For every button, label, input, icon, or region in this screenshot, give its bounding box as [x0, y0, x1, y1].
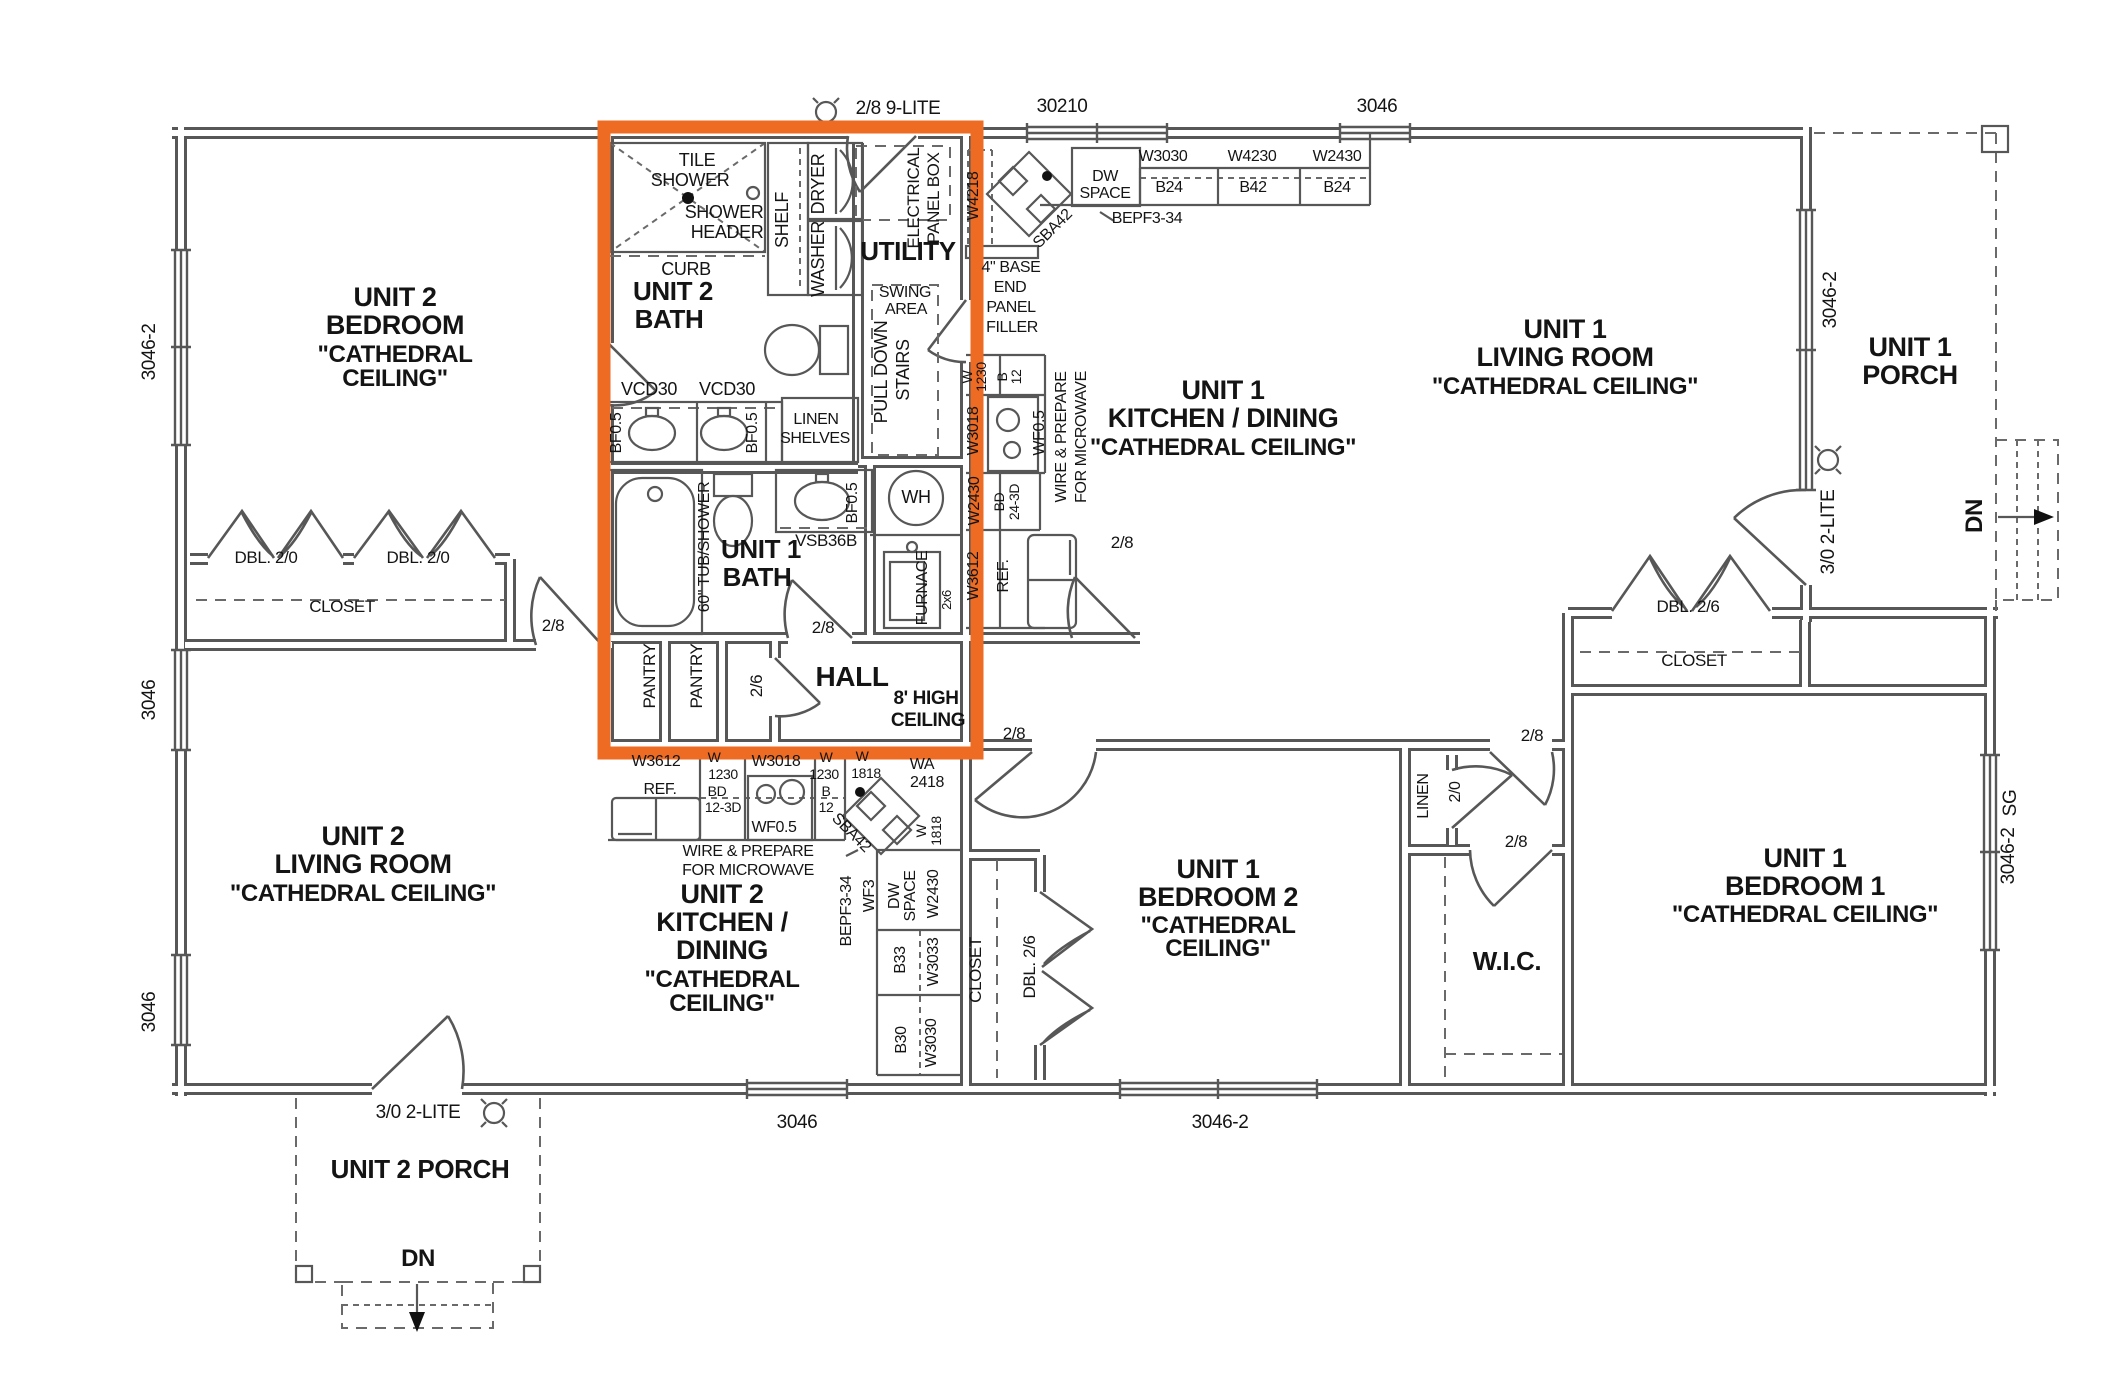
k2-bepf: BEPF3-34	[838, 875, 855, 946]
k2-w3033: W3033	[925, 937, 942, 986]
u2bath-1: UNIT 2	[633, 276, 713, 306]
floor-plan-drawing: 2/8 9-LITE3021030463046-2304630463046304…	[0, 0, 2120, 1388]
u2kit-2: KITCHEN /	[656, 907, 788, 937]
door-porch2-3-0	[372, 1016, 464, 1089]
elec-2: PANEL BOX	[924, 153, 943, 244]
dim-top-door: 2/8 9-LITE	[856, 98, 941, 119]
shh-1: SHOWER	[685, 202, 764, 222]
hc-2: CEILING	[891, 710, 965, 731]
u2kit-4: "CATHEDRAL	[645, 966, 800, 993]
k1-b24b: B24	[1323, 179, 1351, 196]
u1bed1-1: UNIT 1	[1763, 843, 1846, 873]
k2-b: B	[822, 783, 831, 799]
pantry-1: PANTRY	[640, 643, 659, 708]
k1-w3612: W3612	[965, 551, 982, 600]
window-bottom-3046	[747, 1079, 847, 1099]
dim-win-30210: 30210	[1037, 96, 1088, 117]
dim-door-porch2: 3/0 2-LITE	[376, 1102, 461, 1123]
k2-wire-2: FOR MICROWAVE	[682, 862, 814, 879]
vcd30-2: VCD30	[699, 379, 755, 399]
k1-w2430b: W2430	[966, 476, 983, 525]
vsb36b: VSB36B	[795, 531, 857, 550]
window-top-30210	[1027, 123, 1167, 143]
walls	[172, 127, 1998, 1096]
floor-plan-page: 2/8 9-LITE3021030463046-2304630463046304…	[0, 0, 2120, 1388]
u2bed-2: BEDROOM	[326, 310, 464, 340]
u2bed-3: "CATHEDRAL	[318, 341, 473, 368]
u2kit-3: DINING	[676, 935, 768, 965]
k2-b30: B30	[893, 1026, 910, 1054]
u2kit-5: CEILING"	[669, 990, 775, 1017]
vcd30-1: VCD30	[621, 379, 677, 399]
k2-space: SPACE	[902, 870, 919, 921]
door28-e: 2/8	[1521, 726, 1543, 745]
window-lr1-3046-2	[1796, 210, 1816, 490]
shower-head-icon	[747, 187, 759, 199]
u2kit-1: UNIT 2	[680, 879, 763, 909]
k1-wire-2: FOR MICROWAVE	[1073, 371, 1090, 503]
k2-w3612: W3612	[632, 753, 681, 770]
k2-wa: WA	[910, 756, 935, 773]
door28-f: 2/8	[1505, 832, 1527, 851]
door28-d: 2/8	[1111, 533, 1133, 552]
door28-c: 2/8	[1003, 724, 1025, 743]
k2-123d: 12-3D	[705, 799, 741, 815]
k1-filler-2: END	[994, 279, 1027, 296]
k2-2418: 2418	[910, 774, 944, 791]
k2-w-c: W	[856, 748, 870, 764]
linsh-2: SHELVES	[780, 430, 850, 447]
bf05-2: BF0.5	[744, 412, 761, 453]
washer: WASHER	[808, 221, 828, 297]
shelf: SHELF	[772, 192, 792, 248]
door-2-6-hall	[775, 658, 820, 716]
dashed-elements	[196, 133, 2058, 1328]
k1-dw: DW	[1092, 168, 1119, 185]
k1-ref: REF.	[995, 559, 1012, 592]
porch-posts	[296, 126, 2008, 1282]
u1bed1-3: "CATHEDRAL CEILING"	[1672, 901, 1938, 928]
u1bed1-2: BEDROOM 1	[1725, 871, 1885, 901]
door26: 2/6	[747, 675, 766, 697]
k2-1230a: 1230	[708, 766, 738, 782]
porch1-steps	[1996, 440, 2058, 600]
dn-porch1: DN	[1961, 499, 1988, 533]
dim-win-lr1: 3046-2	[1820, 272, 1841, 329]
bf05-1: BF0.5	[608, 412, 625, 453]
closet-u1liv: CLOSET	[1661, 651, 1727, 670]
u2-toilet	[765, 325, 848, 375]
u2liv-1: UNIT 2	[321, 821, 404, 851]
u2bed-1: UNIT 2	[353, 282, 436, 312]
u2bed-4: CEILING"	[342, 365, 448, 392]
k2-ref: REF.	[643, 781, 676, 798]
wall2x6: 2x6	[939, 590, 954, 610]
dim-left-3046-2: 3046-2	[139, 324, 160, 381]
window-bottom-3046-2	[1120, 1079, 1317, 1099]
k1-filler-3: PANEL	[986, 299, 1036, 316]
k1-w4218: W4218	[965, 171, 982, 220]
hc-1: 8' HIGH	[893, 688, 958, 709]
k1-w4230: W4230	[1228, 148, 1277, 165]
dim-bottom-3046-2: 3046-2	[1192, 1112, 1249, 1133]
k1-w3030: W3030	[1139, 148, 1188, 165]
linen: LINEN	[1415, 773, 1432, 818]
u1bed2-1: UNIT 1	[1176, 854, 1259, 884]
k1-wf05: WF0.5	[1031, 410, 1048, 456]
dbl20-2: DBL. 2/0	[387, 548, 450, 567]
dim-win-top-3046: 3046	[1357, 96, 1398, 117]
wic: W.I.C.	[1473, 946, 1541, 976]
door20: 2/0	[1447, 781, 1464, 803]
u2liv-3: "CATHEDRAL CEILING"	[230, 880, 496, 907]
swing-2: AREA	[885, 301, 928, 318]
wall-lines	[172, 127, 1998, 1096]
k1-filler-1: 4" BASE	[982, 259, 1041, 276]
tub: 60" TUB/SHOWER	[696, 482, 713, 612]
dim-door-porch1: 3/0 2-LITE	[1818, 490, 1839, 575]
u1bed2-2: BEDROOM 2	[1138, 882, 1298, 912]
door-utility	[928, 300, 966, 362]
u1liv-2: LIVING ROOM	[1476, 342, 1653, 372]
k2-w3030: W3030	[923, 1018, 940, 1067]
bf05-3: BF0.5	[844, 482, 861, 523]
dryer: DRYER	[808, 153, 828, 214]
bifold-bed2-closet	[1040, 892, 1092, 1045]
k1-1230: 1230	[973, 362, 989, 392]
window-left-3046-2	[171, 250, 191, 445]
u1liv-3: "CATHEDRAL CEILING"	[1432, 373, 1698, 400]
pulldown-1: PULL DOWN	[871, 321, 891, 424]
window-top-3046	[1340, 123, 1410, 143]
u1bath-1: UNIT 1	[721, 534, 801, 564]
k2-dw: DW	[886, 882, 903, 909]
dim-win-sg: SG	[2000, 790, 2021, 817]
door-wic	[1470, 850, 1552, 906]
k2-wf3: WF3	[861, 879, 878, 912]
dim-bottom-3046: 3046	[777, 1112, 818, 1133]
k1-w2430: W2430	[1313, 148, 1362, 165]
u1liv-1: UNIT 1	[1523, 314, 1606, 344]
windows	[171, 123, 2000, 1099]
window-left-3046-a	[171, 650, 191, 750]
u2bath-2: BATH	[635, 304, 704, 334]
door-hall-kitchen1	[1068, 577, 1135, 638]
k1-12: 12	[1008, 369, 1024, 384]
u1kit-2: KITCHEN / DINING	[1108, 403, 1339, 433]
u1bath-2: BATH	[723, 562, 792, 592]
swing-1: SWING	[879, 284, 931, 301]
closet-u2bed: CLOSET	[309, 597, 375, 616]
door-bedroom2	[975, 752, 1096, 817]
window-left-3046-b	[171, 955, 191, 1045]
k1-wire-1: WIRE & PREPARE	[1053, 371, 1070, 502]
window-right-sg-3046-2	[1980, 755, 2000, 950]
u1kit-3: "CATHEDRAL CEILING"	[1090, 434, 1356, 461]
dim-left-3046-b: 3046	[139, 992, 160, 1033]
u1kit-1: UNIT 1	[1181, 375, 1264, 405]
u1porch-2: PORCH	[1862, 360, 1958, 390]
k2-w3018: W3018	[752, 753, 801, 770]
k2-bd: BD	[708, 783, 727, 799]
k1-b42: B42	[1239, 179, 1267, 196]
furnace: FURNACE	[914, 551, 931, 626]
pantry-2: PANTRY	[687, 643, 706, 708]
k1-b24a: B24	[1155, 179, 1183, 196]
k2-w2430: W2430	[925, 869, 942, 918]
door-porch1-3-0	[1734, 490, 1806, 585]
k2-12: 12	[819, 799, 834, 815]
wall-inner-lines	[172, 127, 1998, 1096]
k2-b33: B33	[892, 946, 909, 974]
k2-w-a: W	[708, 749, 722, 765]
k2-1818a: 1818	[851, 765, 881, 781]
k2-wf05: WF0.5	[751, 819, 797, 836]
u2liv-2: LIVING ROOM	[274, 849, 451, 879]
door28-b: 2/8	[542, 616, 564, 635]
wh: WH	[901, 487, 930, 507]
linsh-1: LINEN	[793, 411, 838, 428]
hall: HALL	[815, 661, 888, 692]
k1-bd: BD	[991, 492, 1007, 511]
dim-left-3046-a: 3046	[139, 680, 160, 721]
fixtures	[296, 98, 2054, 1332]
tile-2: SHOWER	[651, 170, 730, 190]
curb: CURB	[661, 259, 711, 279]
k1-filler-4: FILLER	[986, 319, 1038, 336]
dbl26-1: DBL. 2/6	[1657, 597, 1720, 616]
elec-1: ELECTRICAL	[904, 148, 923, 249]
k1-space: SPACE	[1079, 185, 1130, 202]
k2-wire-1: WIRE & PREPARE	[682, 843, 813, 860]
k2-w-b: W	[820, 749, 834, 765]
shh-2: HEADER	[691, 222, 764, 242]
dim-win-right: 3046-2	[1998, 828, 2019, 885]
dn-porch2: DN	[401, 1245, 435, 1272]
u2porch: UNIT 2 PORCH	[331, 1154, 510, 1184]
dbl20-1: DBL. 2/0	[235, 548, 298, 567]
k2-1230b: 1230	[809, 766, 839, 782]
k1-bepf: BEPF3-34	[1112, 210, 1183, 227]
k2-w-d: W	[913, 823, 929, 837]
closet-bed2: CLOSET	[966, 937, 985, 1003]
door-vestibule	[1490, 752, 1554, 805]
door28-a: 2/8	[812, 618, 834, 637]
u1porch-1: UNIT 1	[1868, 332, 1951, 362]
tile-1: TILE	[679, 150, 716, 170]
pulldown-2: STAIRS	[893, 339, 913, 401]
u1-tub	[608, 470, 702, 634]
k1-w3018: W3018	[965, 406, 982, 455]
k1-243d: 24-3D	[1006, 484, 1022, 520]
u1bed2-4: CEILING"	[1165, 935, 1271, 962]
dbl26-2: DBL. 2/6	[1020, 936, 1039, 999]
k2-1818b: 1818	[928, 816, 944, 846]
